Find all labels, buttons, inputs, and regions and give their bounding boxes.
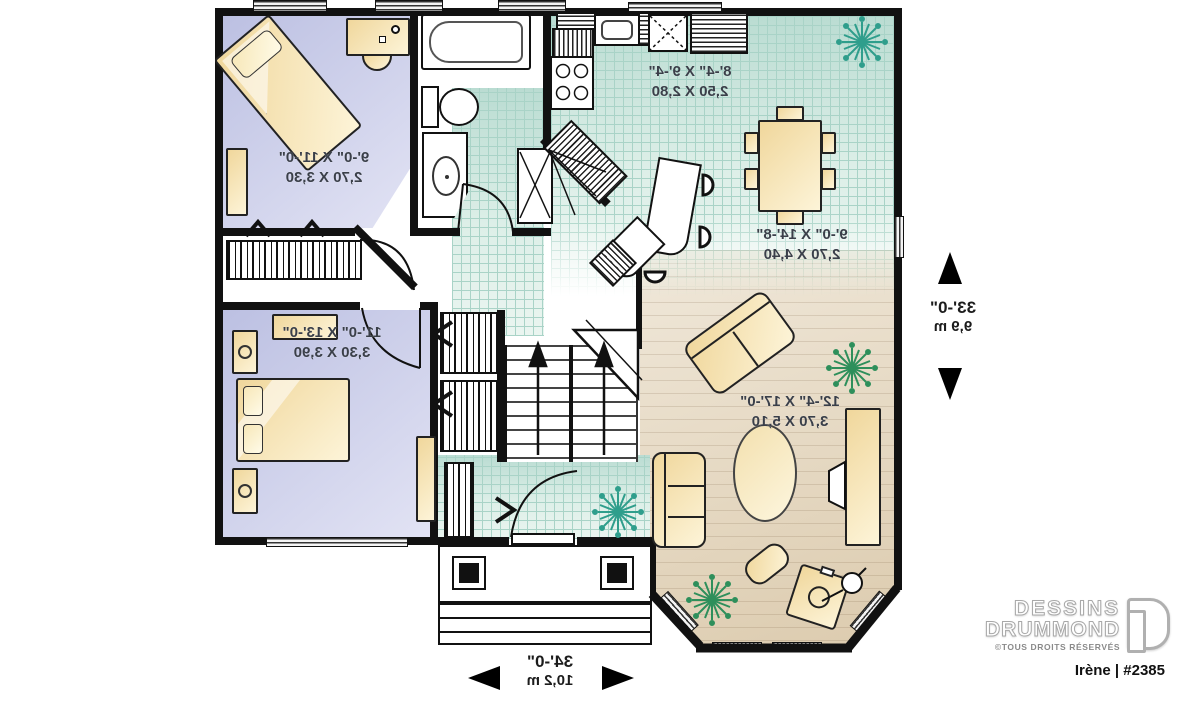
brand-logo-door [1127,610,1146,653]
stove-burners [557,65,588,100]
tv-icon [829,462,845,509]
winder-stairs [549,150,606,215]
bedroom1-door-arc [360,240,414,290]
stair-up-arrows [530,344,612,455]
bifold-door-chevrons [246,222,514,522]
linen-shelves-x [520,152,550,218]
dimension-arrow-right [602,666,634,690]
brand-name-line1: DESSINS [1014,598,1120,619]
front-door-arc [511,471,577,537]
plan-id: Irène | #2385 [1030,662,1165,679]
dimension-arrow-down [938,368,962,400]
brand-logo-mark [1127,598,1170,650]
counter-stools [645,175,713,282]
brand-name-line2: DRUMMOND [985,619,1120,640]
bedroom-2-label: 11'-0" X 13'-0" 3,30 X 3,90 [240,323,424,362]
bay-walls [652,588,897,648]
brand-rights: ©TOUS DROITS RÉSERVÉS [995,642,1120,652]
dining-label: 9'-0" X 14'-8" 2,70 X 4,40 [710,225,894,264]
floor-lamp-icon [822,568,866,601]
plant-icon [593,487,643,537]
dimension-arrow-up [938,252,962,284]
bedroom-1-label: 9'-0" X 11'-0" 2,70 X 3,30 [232,148,416,187]
bathroom-door-arc [463,184,513,232]
dimension-arrow-left [468,666,500,690]
kitchen-label: 8'-4" X 9'-4" 2,50 X 2,80 [598,62,782,101]
floor-plan-canvas: 9'-0" X 11'-0" 2,70 X 3,30 8'-4" X 9'-4"… [0,0,1200,711]
living-label: 12'-4" X 17'-0" 3,70 X 5,10 [698,392,882,431]
plant-icon [837,17,887,67]
plant-icon [687,575,737,625]
plant-icon [827,343,877,393]
side-dimension: 33'-0" 9,9 m [908,298,998,336]
brand-block: DESSINS DRUMMOND ©TOUS DROITS RÉSERVÉS [985,598,1170,652]
bottom-dimension: 34'-0" 10,2 m [498,652,602,690]
dishwasher-dashes [650,16,686,50]
